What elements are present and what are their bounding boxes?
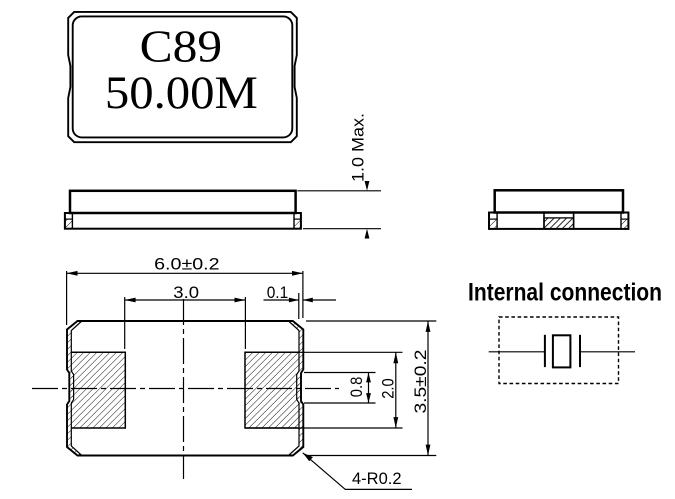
svg-text:50.00M: 50.00M — [105, 68, 258, 119]
svg-text:4-R0.2: 4-R0.2 — [352, 470, 402, 488]
svg-text:0.1: 0.1 — [267, 284, 289, 302]
svg-text:3.5±0.2: 3.5±0.2 — [412, 350, 430, 414]
svg-text:C89: C89 — [140, 22, 223, 72]
svg-text:1.0 Max.: 1.0 Max. — [350, 113, 368, 182]
svg-text:3.0: 3.0 — [173, 284, 199, 302]
svg-text:6.0±0.2: 6.0±0.2 — [154, 255, 220, 273]
svg-text:0.8: 0.8 — [348, 377, 366, 398]
svg-text:Internal connection: Internal connection — [468, 280, 662, 307]
svg-text:2.0: 2.0 — [380, 378, 398, 399]
